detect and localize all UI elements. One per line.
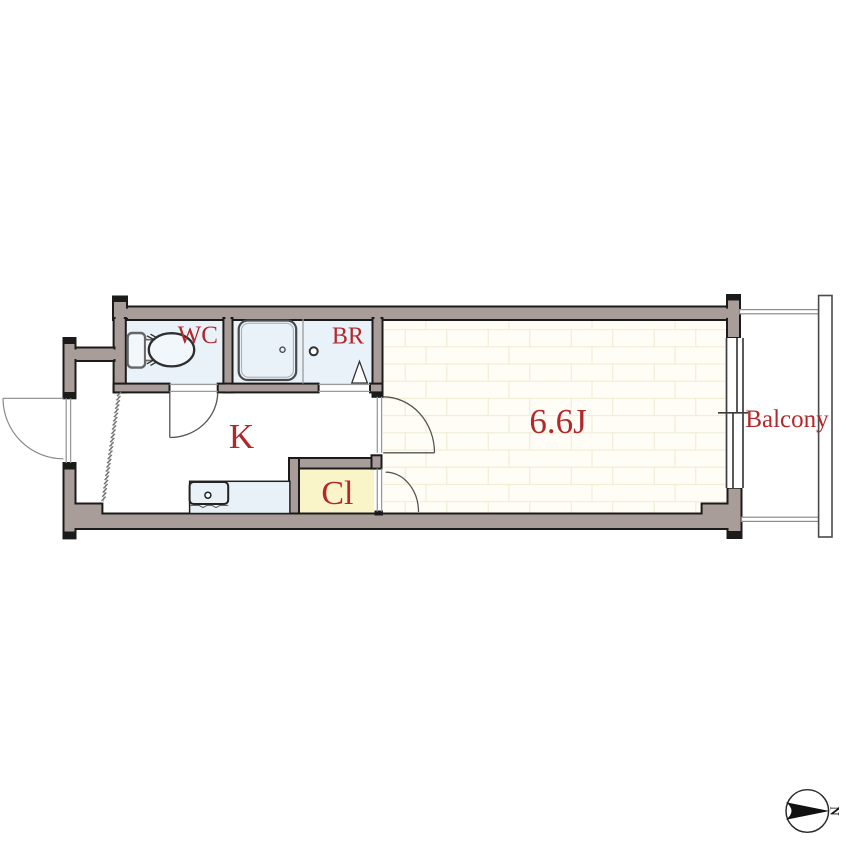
svg-text:Balcony: Balcony: [745, 406, 829, 433]
svg-text:6.6J: 6.6J: [529, 402, 586, 441]
svg-text:WC: WC: [178, 322, 218, 349]
svg-text:N: N: [828, 806, 842, 815]
svg-text:Cl: Cl: [321, 475, 353, 512]
svg-text:BR: BR: [332, 324, 364, 350]
svg-text:K: K: [229, 417, 254, 456]
